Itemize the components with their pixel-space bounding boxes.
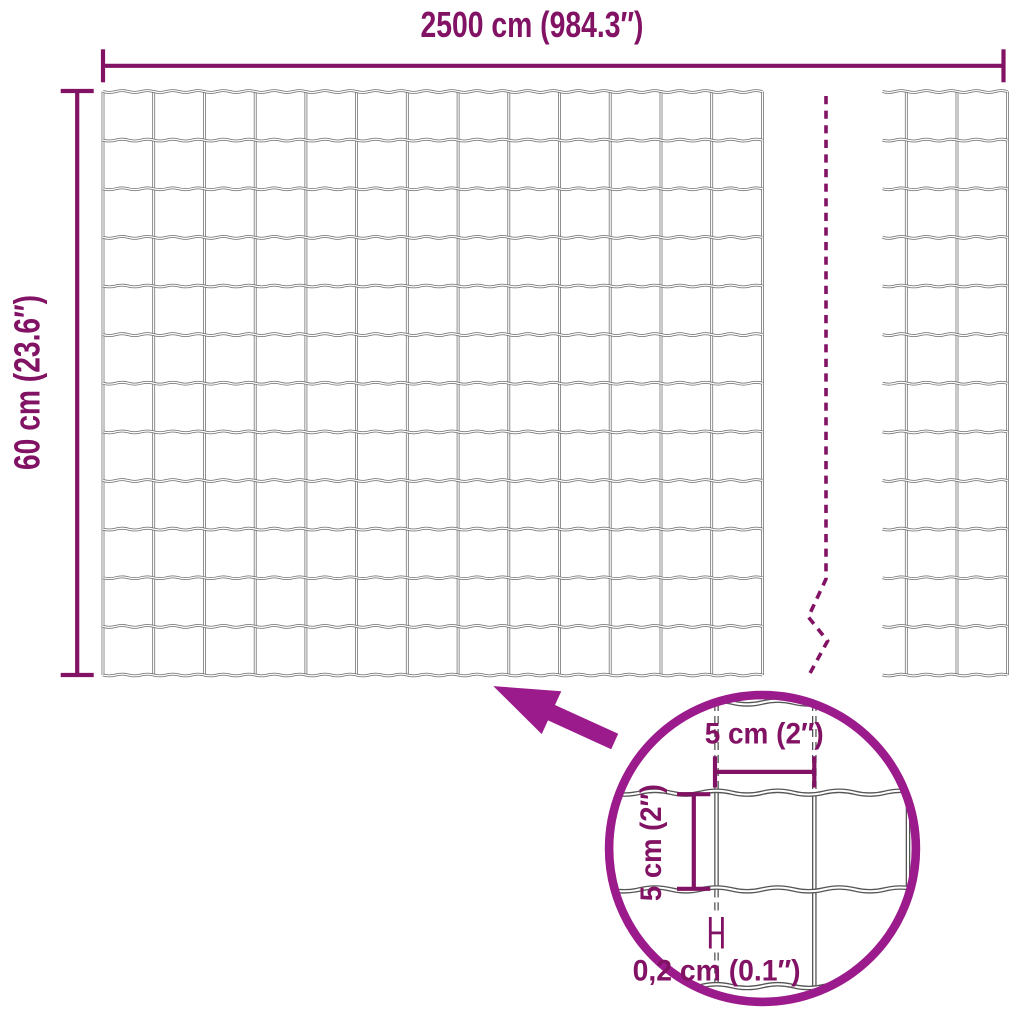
svg-text:0,2 cm (0.1″): 0,2 cm (0.1″) xyxy=(633,955,801,988)
svg-text:5 cm (2″): 5 cm (2″) xyxy=(635,784,668,901)
svg-text:2500 cm (984.3″): 2500 cm (984.3″) xyxy=(421,4,644,45)
svg-text:60 cm (23.6″): 60 cm (23.6″) xyxy=(7,295,48,470)
svg-text:5 cm (2″): 5 cm (2″) xyxy=(705,718,824,751)
